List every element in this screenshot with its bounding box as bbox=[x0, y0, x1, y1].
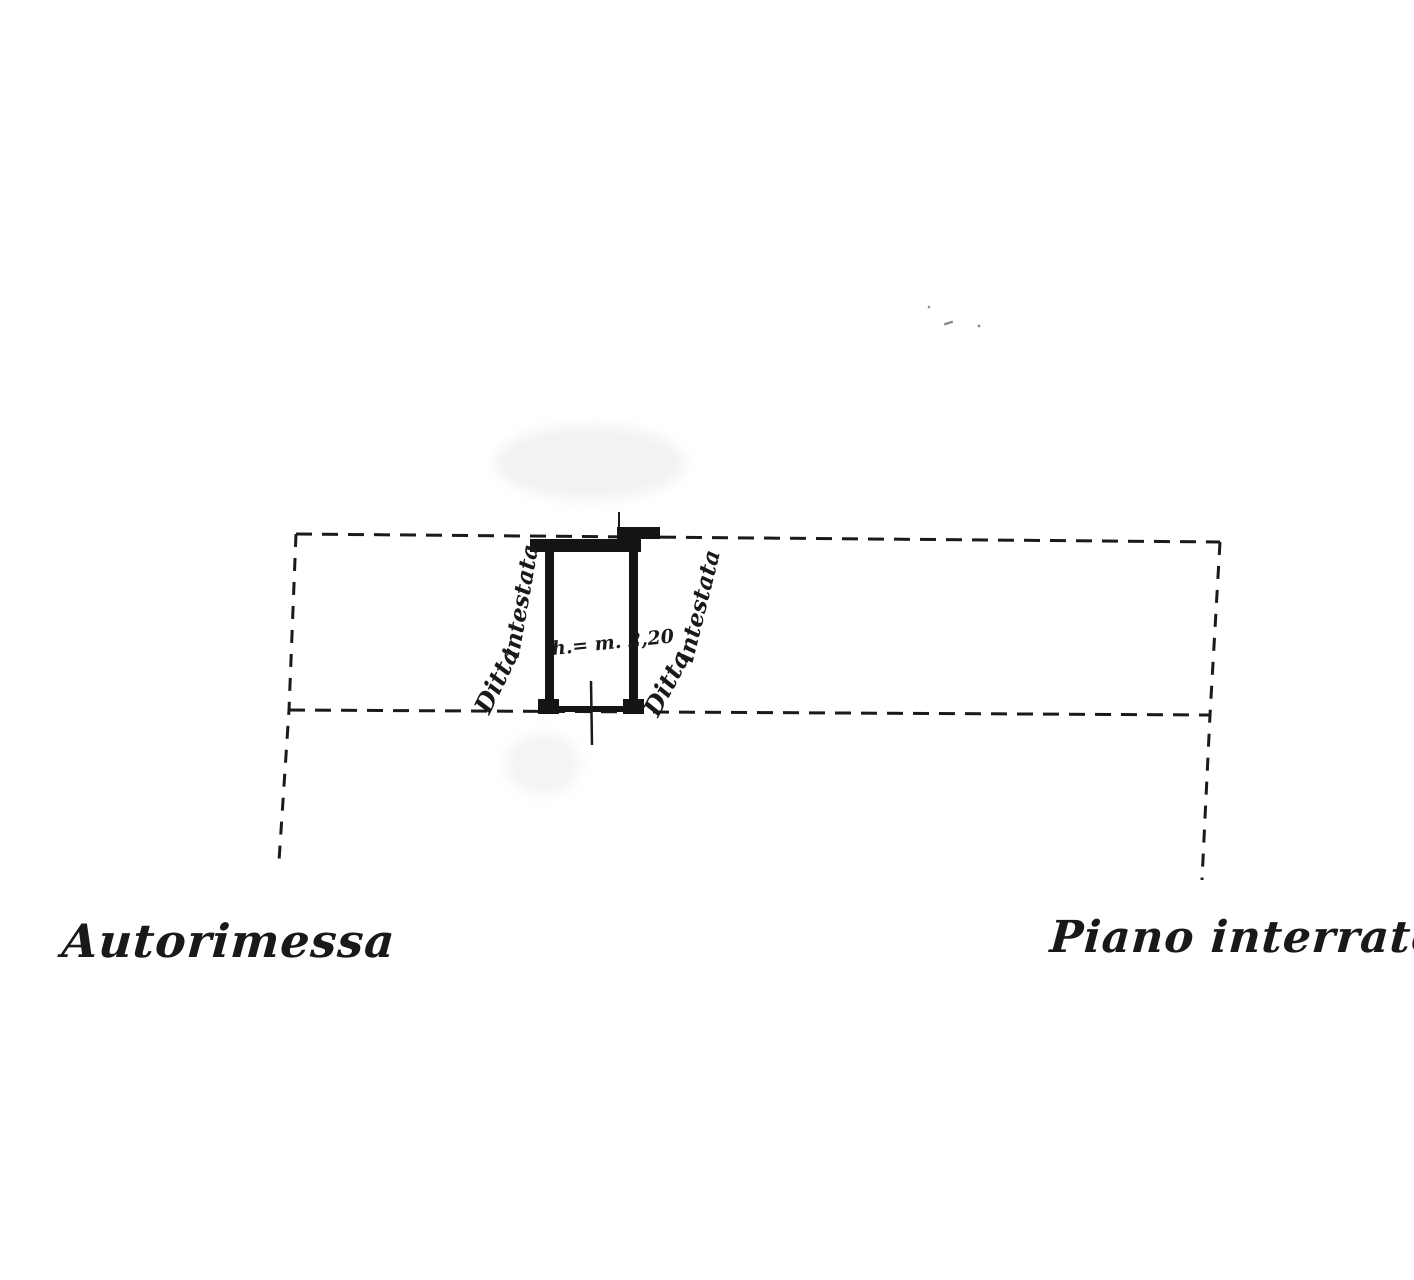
garage-step-wall bbox=[617, 527, 660, 539]
plan-drawing bbox=[0, 0, 1414, 1280]
center-axis-line bbox=[591, 681, 592, 745]
garage-right-wall bbox=[629, 552, 638, 701]
boundary-top-dashed-line bbox=[296, 534, 1220, 542]
caption-autorimessa: Autorimessa bbox=[60, 918, 397, 964]
caption-piano-interrato: Piano interrato bbox=[1048, 916, 1414, 960]
garage-left-wall bbox=[545, 552, 554, 701]
scan-speck bbox=[928, 306, 931, 309]
scan-speck bbox=[978, 325, 981, 328]
scan-speck bbox=[944, 321, 953, 326]
boundary-left-dashed-line bbox=[279, 534, 296, 861]
boundary-right-dashed-line bbox=[1202, 542, 1220, 880]
garage-top-wall bbox=[530, 539, 641, 552]
scanned-floor-plan-page: h.= m. 2,20 Ditta intestata Ditta intest… bbox=[0, 0, 1414, 1280]
garage-walls bbox=[530, 527, 660, 714]
scan-specks bbox=[928, 306, 981, 328]
boundary-middle-dashed-line bbox=[289, 710, 1210, 715]
